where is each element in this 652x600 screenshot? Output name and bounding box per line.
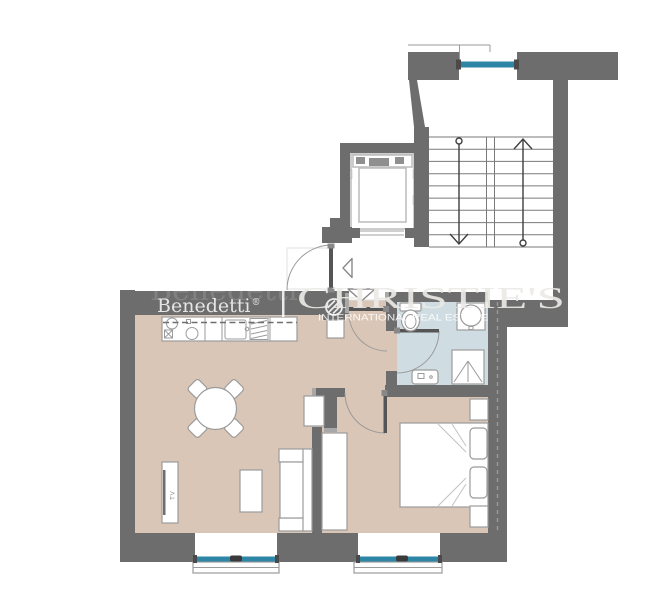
window-bedroom — [354, 555, 442, 573]
floor-plan: TV — [0, 0, 652, 600]
tv-unit: TV — [162, 462, 178, 523]
wall-shaft-top — [340, 143, 425, 153]
watermark-brand: Benedetti® — [157, 295, 260, 317]
shower — [452, 350, 484, 384]
tv-label: TV — [170, 491, 177, 500]
wall-bathroom-left-lower — [386, 371, 397, 385]
double-bed — [400, 423, 488, 507]
wall-top-right-of-window — [517, 52, 618, 80]
sofa-armrest — [279, 518, 303, 531]
pillow — [470, 428, 487, 459]
floor-plan-page: TV — [0, 0, 652, 600]
bath-door-gap-floor — [386, 331, 397, 373]
coffee-table — [240, 470, 262, 512]
wall-bottom-left — [120, 533, 195, 562]
wall-stair-left-upper — [409, 80, 425, 127]
wall-bottom-middle — [277, 533, 358, 562]
staircase — [429, 137, 553, 247]
wall-left — [120, 290, 135, 562]
sofa-seat — [280, 462, 303, 518]
jamb-cap-stem — [324, 428, 337, 432]
wall-bedroom-stem — [324, 388, 337, 432]
stair-arrow-up — [514, 139, 532, 246]
cabinet — [304, 396, 324, 426]
wall-bathroom-bottom — [385, 385, 507, 397]
wall-shaft-right — [415, 143, 425, 238]
direction-marker-left — [343, 259, 352, 278]
wall-shaft-bottom-right — [405, 228, 425, 238]
wall-living-bedroom-divider — [312, 427, 322, 533]
elevator — [347, 154, 419, 235]
watermark-subtitle: INTERNATIONAL REAL ESTATE — [318, 313, 488, 323]
bidet — [412, 370, 438, 384]
counter-return — [327, 320, 344, 338]
watermark-separator — [282, 291, 285, 317]
dining-table — [195, 388, 237, 430]
wall-entry-pier-stub — [330, 218, 342, 227]
nightstand — [470, 506, 488, 527]
wall-top-left-of-window — [408, 52, 459, 80]
dining-table-set — [187, 378, 245, 438]
sofa-armrest — [279, 449, 303, 462]
stairwell-window — [456, 60, 519, 70]
watermark-big-text: CHRISTIE'S — [297, 280, 565, 315]
wardrobe — [322, 433, 347, 530]
window-living-room — [193, 555, 279, 573]
sofa — [279, 449, 312, 531]
wall-bottom-right — [440, 533, 507, 562]
pillow — [470, 467, 487, 498]
nightstand — [470, 399, 488, 420]
wall-entry-pier — [322, 227, 352, 243]
wall-stairwell-right — [553, 80, 568, 302]
stair-arrow-down — [450, 138, 468, 244]
